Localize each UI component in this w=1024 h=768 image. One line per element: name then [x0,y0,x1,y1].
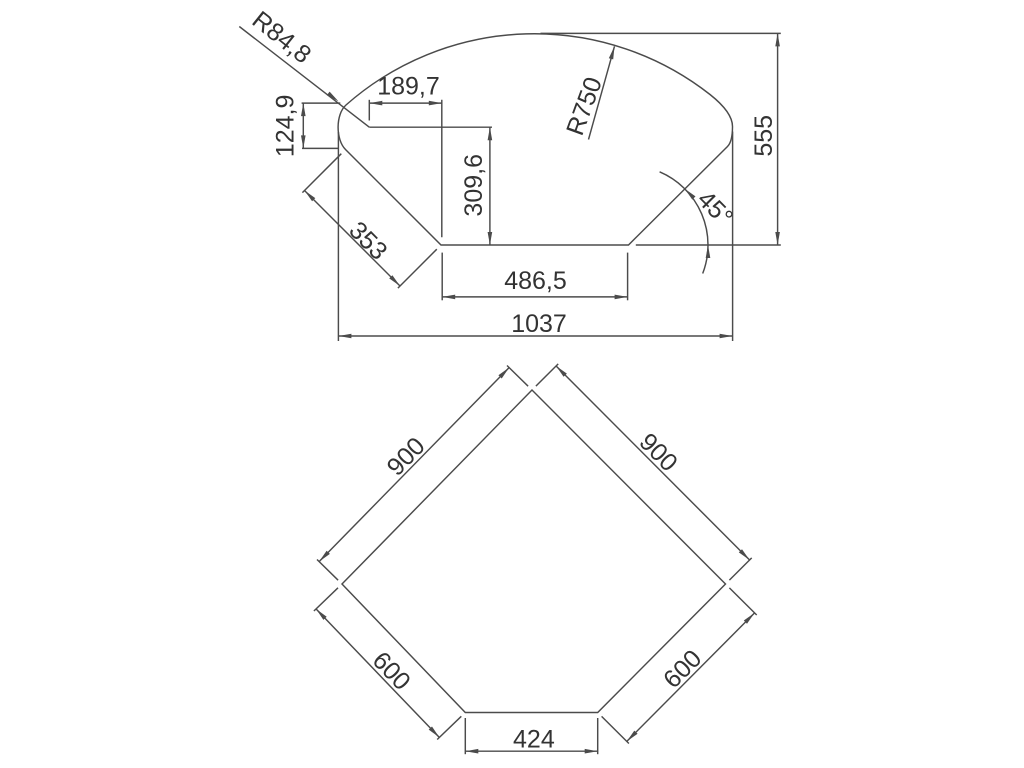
svg-text:424: 424 [513,725,555,753]
svg-text:189,7: 189,7 [377,73,440,101]
svg-text:R750: R750 [561,73,608,139]
svg-text:900: 900 [634,428,683,477]
svg-text:353: 353 [343,216,392,265]
svg-text:600: 600 [658,645,707,694]
svg-text:1037: 1037 [511,310,567,338]
svg-text:309,6: 309,6 [460,154,488,217]
svg-text:45°: 45° [692,185,739,232]
svg-text:555: 555 [750,115,778,157]
svg-text:486,5: 486,5 [504,267,567,295]
svg-text:124,9: 124,9 [271,95,299,158]
svg-text:900: 900 [382,432,431,481]
